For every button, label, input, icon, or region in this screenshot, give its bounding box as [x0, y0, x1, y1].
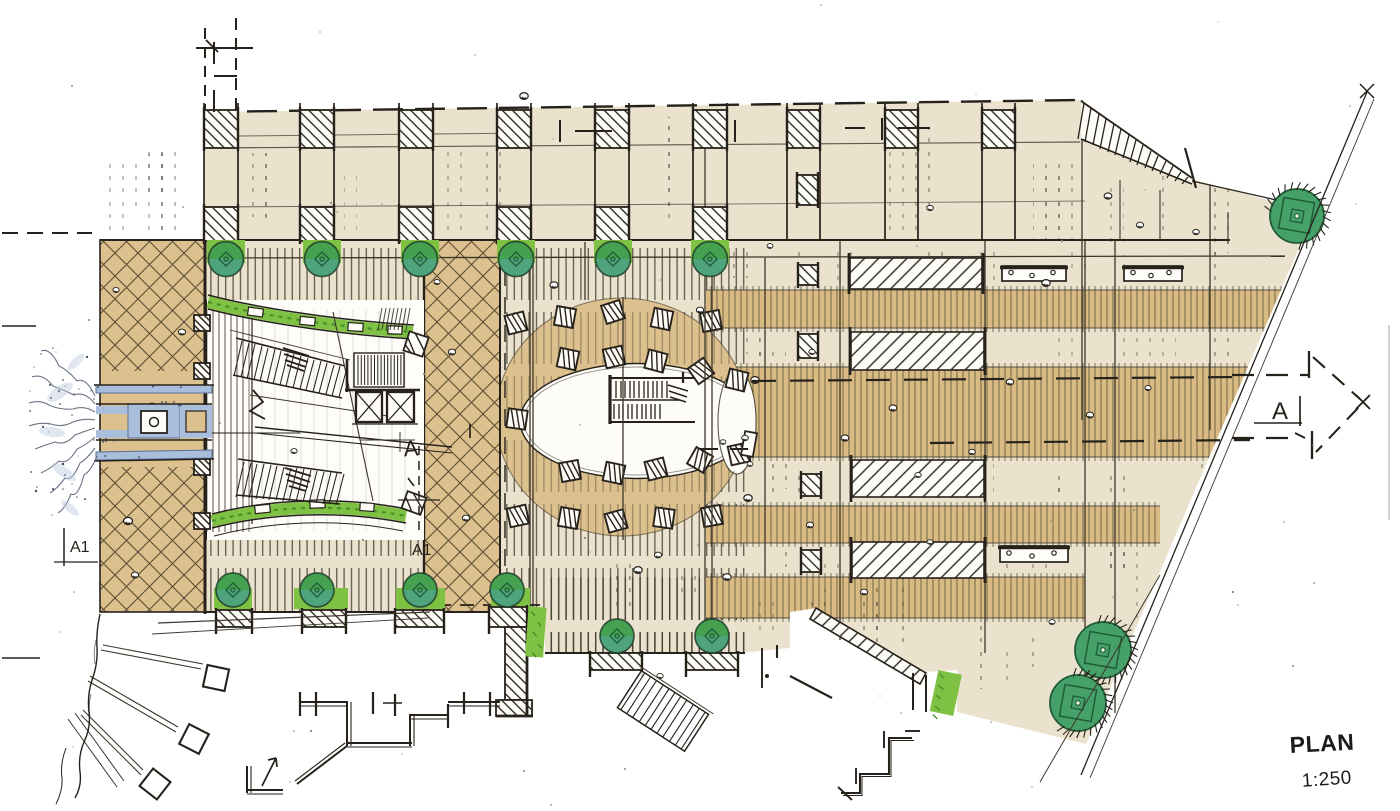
svg-text:1:250: 1:250	[1301, 767, 1352, 791]
svg-text:A1: A1	[70, 539, 90, 556]
svg-text:A: A	[403, 435, 420, 461]
svg-text:PLAN: PLAN	[1289, 729, 1355, 758]
svg-text:A: A	[1272, 398, 1288, 425]
svg-text:A1: A1	[412, 542, 432, 559]
